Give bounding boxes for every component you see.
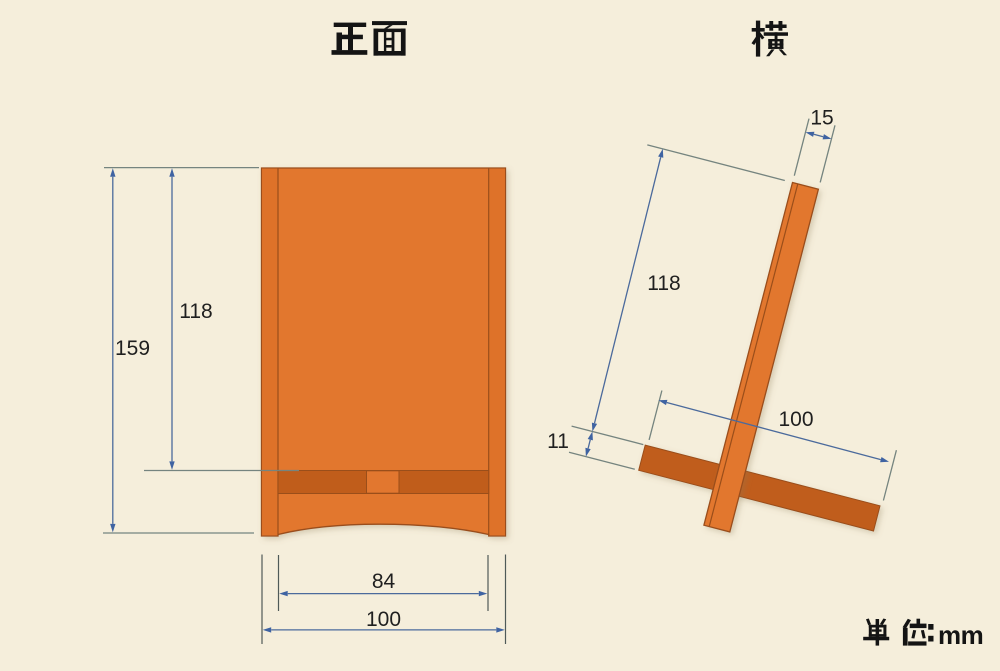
svg-text:11: 11 bbox=[547, 430, 569, 453]
svg-text:84: 84 bbox=[372, 570, 396, 593]
svg-text:15: 15 bbox=[810, 107, 833, 130]
svg-text:118: 118 bbox=[647, 272, 680, 295]
svg-text:mm: mm bbox=[938, 620, 983, 650]
svg-text:100: 100 bbox=[778, 408, 813, 431]
svg-text:159: 159 bbox=[115, 337, 150, 360]
svg-text:100: 100 bbox=[366, 608, 401, 631]
svg-text:118: 118 bbox=[179, 300, 212, 323]
